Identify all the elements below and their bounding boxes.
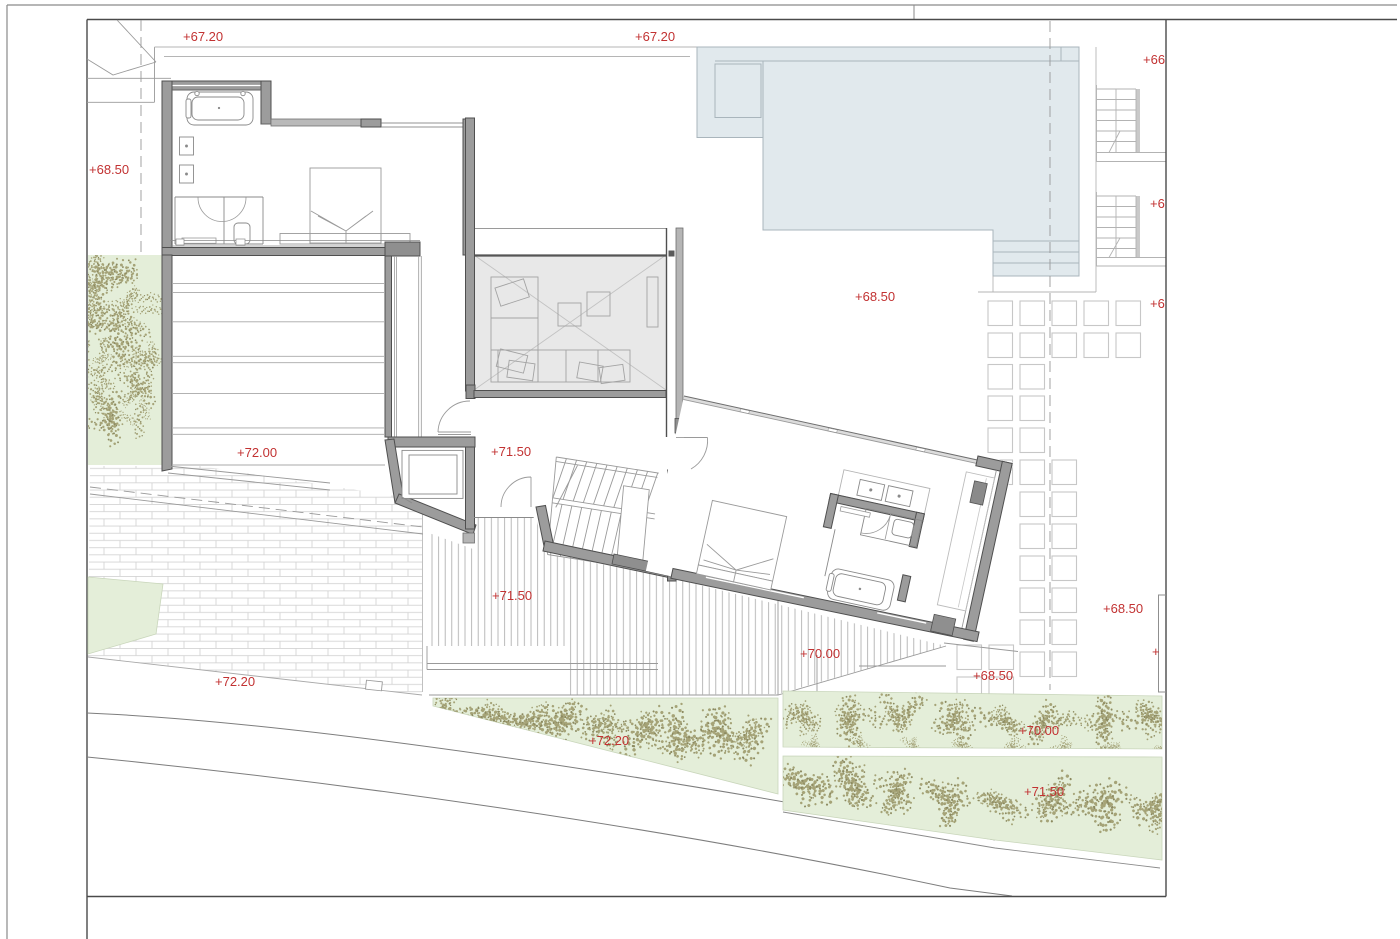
svg-text:+72.00: +72.00 — [237, 445, 277, 460]
svg-text:+67.20: +67.20 — [183, 29, 223, 44]
svg-text:+6: +6 — [1150, 296, 1165, 311]
svg-text:+: + — [1152, 644, 1160, 659]
svg-text:+68.50: +68.50 — [855, 289, 895, 304]
svg-text:+67.20: +67.20 — [635, 29, 675, 44]
svg-text:+70.00: +70.00 — [1019, 723, 1059, 738]
svg-text:+68.50: +68.50 — [89, 162, 129, 177]
svg-text:+72.20: +72.20 — [589, 733, 629, 748]
svg-text:+70.00: +70.00 — [800, 646, 840, 661]
svg-text:+72.20: +72.20 — [215, 674, 255, 689]
svg-text:+71.50: +71.50 — [491, 444, 531, 459]
svg-text:+66: +66 — [1143, 52, 1165, 67]
svg-text:+68.50: +68.50 — [973, 668, 1013, 683]
svg-text:+6: +6 — [1150, 196, 1165, 211]
svg-text:+68.50: +68.50 — [1103, 601, 1143, 616]
svg-text:+71.50: +71.50 — [1024, 784, 1064, 799]
svg-text:+71.50: +71.50 — [492, 588, 532, 603]
